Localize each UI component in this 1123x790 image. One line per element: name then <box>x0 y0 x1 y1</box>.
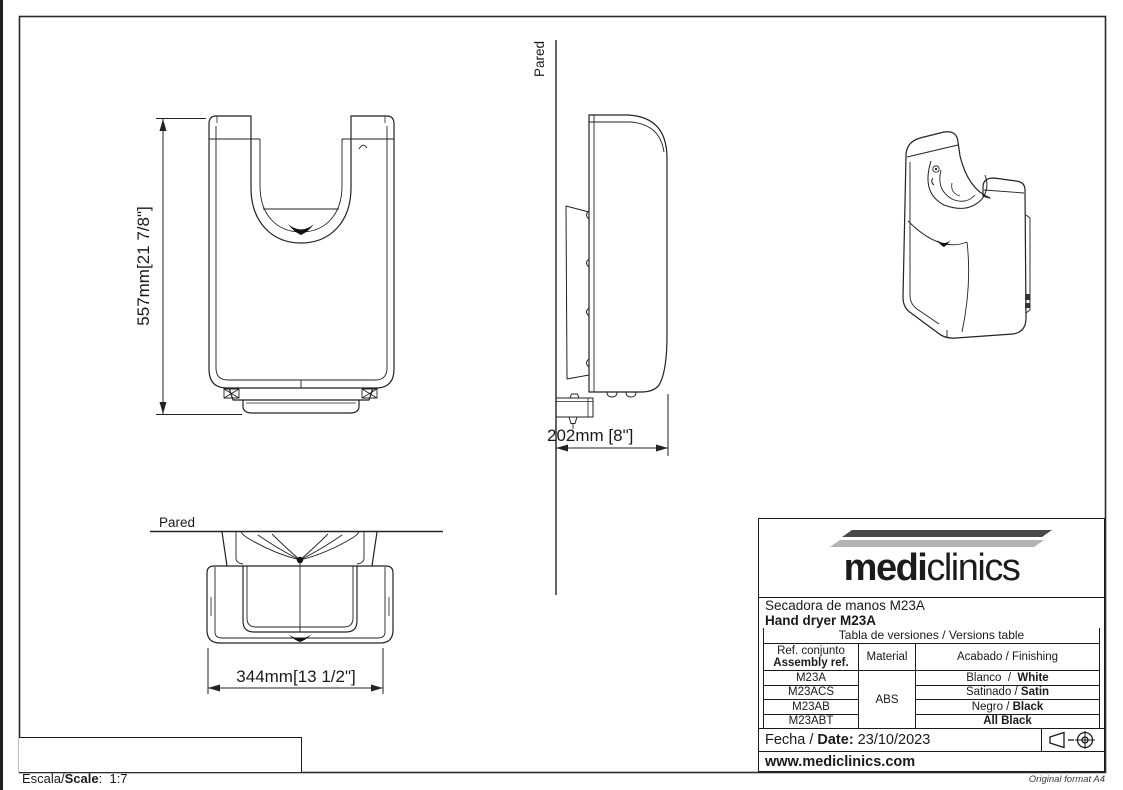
finishing-cell: Satinado / Satin <box>916 685 1099 700</box>
front-cavity-inner <box>260 139 342 232</box>
iso-backplate-clip-2 <box>1025 303 1030 308</box>
product-name-es: Secadora de manos M23A <box>765 599 1104 614</box>
projection-symbol-cell <box>1041 729 1104 751</box>
front-wing-logo <box>288 224 314 235</box>
finish-bold: Satin <box>1021 686 1049 698</box>
scale-line: Escala/Scale: 1:7 <box>22 771 301 787</box>
side-wall-label: Pared <box>532 41 547 77</box>
front-dimension <box>156 119 242 415</box>
versions-table-body: Ref. conjunto Assembly ref. M23A M23ACS … <box>764 644 1099 728</box>
date-label-en: Date: <box>817 732 853 748</box>
top-arrow-left <box>208 685 220 692</box>
versions-col-ref: Ref. conjunto Assembly ref. M23A M23ACS … <box>764 644 859 728</box>
product-title: Secadora de manos M23A Hand dryer M23A <box>759 597 1104 628</box>
finishing-column-header: Acabado / Finishing <box>916 644 1099 670</box>
top-fan-lines <box>241 532 359 560</box>
title-block: mediclinics Secadora de manos M23A Hand … <box>758 518 1105 772</box>
ref-column-header: Ref. conjunto Assembly ref. <box>764 644 858 670</box>
brand-logo: mediclinics <box>759 519 1104 597</box>
iso-cavity-depth <box>952 183 960 196</box>
front-body-outline <box>209 116 394 388</box>
finish-plain: Blanco / <box>966 672 1017 684</box>
side-arrow-left <box>556 445 568 452</box>
side-view <box>556 40 667 595</box>
material-column-header: Material <box>859 644 915 670</box>
brand-wordmark: mediclinics <box>759 545 1104 591</box>
top-arrow-right <box>371 685 383 692</box>
versions-table-title: Tabla de versiones / Versions table <box>764 628 1099 644</box>
versions-col-finishing: Acabado / Finishing Blanco / White Satin… <box>916 644 1099 728</box>
iso-silhouette <box>903 132 1026 338</box>
side-arrow-right <box>656 445 668 452</box>
side-dim-label: 202mm [8"] <box>547 426 633 445</box>
iso-front-right-edge <box>962 242 969 332</box>
side-drain-box <box>556 394 593 429</box>
ref-header-es: Ref. conjunto <box>777 645 845 657</box>
logo-stripe-dark <box>842 530 1052 537</box>
side-wall-plate <box>566 206 589 379</box>
ref-cell: M23AB <box>764 699 858 714</box>
iso-collar-bottom <box>908 221 967 245</box>
scale-label-es: Escala/ <box>22 771 65 786</box>
iso-cavity-mouth <box>928 161 987 208</box>
side-body-outline <box>589 115 667 392</box>
top-pivot-dot <box>297 557 303 563</box>
side-bottom-tabs <box>607 392 636 397</box>
technical-drawing-page: 557mm[21 7/8"] 202m <box>0 0 1123 790</box>
ref-cell: M23ACS <box>764 685 858 700</box>
date-text: Fecha / Date: 23/10/2023 <box>759 729 1041 751</box>
brand-wordmark-bold: medi <box>844 547 927 589</box>
date-label-es: Fecha / <box>765 732 817 748</box>
scale-box: Escala/Scale: 1:7 Dimensiones/Dimensions… <box>19 737 302 772</box>
website-row: www.mediclinics.com <box>759 751 1104 770</box>
front-tray-lower <box>243 400 359 413</box>
iso-front-left-seam <box>910 162 939 324</box>
material-value-cell: ABS <box>859 670 915 728</box>
first-angle-projection-icon <box>1045 730 1101 750</box>
front-sensor-mark <box>359 145 367 149</box>
front-arrow-down <box>160 402 167 414</box>
finishing-cell: Blanco / White <box>916 670 1099 685</box>
finish-bold: All Black <box>983 715 1032 727</box>
iso-right-arm-rim <box>984 190 1024 193</box>
side-body-top-seam <box>589 122 664 152</box>
top-dim-label: 344mm[13 1/2"] <box>236 667 355 686</box>
iso-cavity-inner <box>940 170 975 201</box>
iso-view <box>903 132 1030 338</box>
versions-table: Tabla de versiones / Versions table Ref.… <box>763 628 1100 728</box>
front-view <box>209 116 394 413</box>
corner-note: Original format A4 <box>1029 774 1105 785</box>
date-row: Fecha / Date: 23/10/2023 <box>759 728 1104 751</box>
brand-wordmark-light: clinics <box>926 547 1019 589</box>
ref-header-en: Assembly ref. <box>773 657 848 669</box>
iso-sensor-mark <box>932 178 934 185</box>
front-tray-upper <box>229 388 373 400</box>
top-view <box>150 532 443 644</box>
iso-backplate-clip-1 <box>1025 294 1030 300</box>
scale-label-en: Scale <box>65 771 99 786</box>
ref-cell: M23ABT <box>764 714 858 729</box>
finish-bold: Black <box>1013 701 1044 713</box>
iso-wing-logo <box>937 240 951 247</box>
front-arrow-up <box>160 119 167 131</box>
finish-plain: Satinado / <box>966 686 1021 698</box>
ref-cell: M23A <box>764 670 858 685</box>
iso-sensor-dot <box>935 168 937 170</box>
front-dim-label: 557mm[21 7/8"] <box>134 206 153 325</box>
finish-bold: White <box>1017 672 1048 684</box>
top-wall-label: Pared <box>159 515 195 530</box>
front-body-seam <box>216 126 387 380</box>
finishing-cell: All Black <box>916 714 1099 729</box>
finish-plain: Negro / <box>972 701 1013 713</box>
iso-cap-rim <box>907 145 958 157</box>
finishing-cell: Negro / Black <box>916 699 1099 714</box>
versions-col-material: Material ABS <box>859 644 916 728</box>
product-name-en: Hand dryer M23A <box>765 614 1104 629</box>
date-value: 23/10/2023 <box>854 732 931 748</box>
scale-value: : 1:7 <box>99 771 128 786</box>
